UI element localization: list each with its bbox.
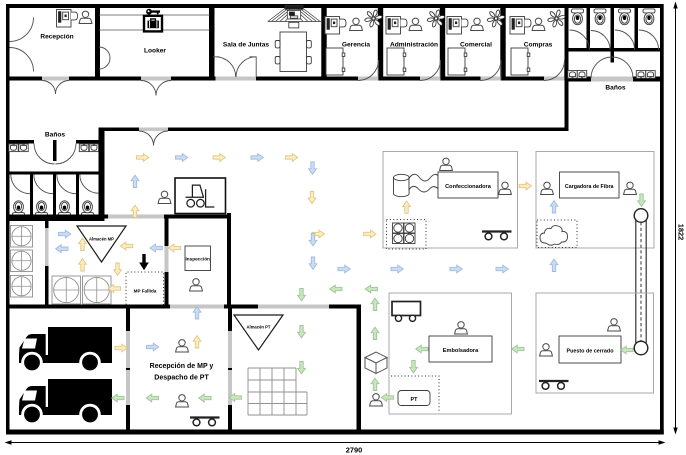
svg-text:Almacén MP: Almacén MP — [89, 237, 114, 242]
svg-text:Compras: Compras — [524, 42, 553, 49]
svg-text:Comercial: Comercial — [460, 42, 492, 49]
svg-text:Almacén PT: Almacén PT — [247, 325, 271, 330]
svg-text:Recepción de MP y: Recepción de MP y — [150, 363, 214, 370]
svg-text:Cargadora de Fibra: Cargadora de Fibra — [565, 184, 614, 190]
svg-text:Puesto de cerrado: Puesto de cerrado — [566, 349, 614, 355]
svg-text:Recepción: Recepción — [40, 34, 73, 41]
svg-text:Looker: Looker — [144, 48, 166, 55]
svg-text:Despacho de PT: Despacho de PT — [154, 375, 209, 382]
svg-text:Gerencia: Gerencia — [342, 42, 371, 49]
svg-text:Inspección: Inspección — [185, 257, 210, 262]
svg-text:Baños: Baños — [605, 85, 625, 92]
svg-text:2790: 2790 — [346, 446, 362, 455]
svg-text:Sala de Juntas: Sala de Juntas — [223, 42, 270, 49]
svg-text:Baños: Baños — [45, 132, 65, 139]
svg-text:MP Fallida: MP Fallida — [134, 289, 157, 294]
svg-text:PT: PT — [411, 397, 419, 403]
svg-text:1822: 1822 — [676, 224, 685, 240]
svg-text:Confeccionadora: Confeccionadora — [445, 184, 492, 190]
svg-text:Embolsadora: Embolsadora — [443, 348, 479, 354]
svg-text:Administración: Administración — [390, 42, 438, 49]
